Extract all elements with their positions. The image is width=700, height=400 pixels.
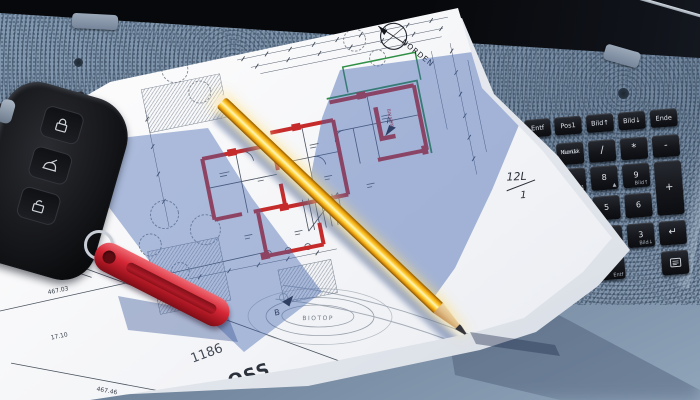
ende-key: Ende	[650, 108, 678, 128]
grille-screw-right	[618, 88, 629, 99]
pos1-key: Pos1	[554, 116, 582, 136]
numpad-9-key: 9Bild↑	[622, 162, 651, 188]
bild-up-key: Bild↑	[586, 113, 614, 133]
unlock-icon	[28, 196, 50, 216]
menu-icon-key	[661, 250, 690, 276]
numpad-plus-key: +	[654, 160, 685, 216]
numpad-enter-key: ↵	[658, 220, 687, 246]
photo-scene: Esc F1 Entf Pos1 Bild↑ Bild↓ Ende NumLkS…	[0, 0, 700, 400]
divide-key: /	[588, 139, 617, 163]
bild-down-key: Bild↓	[618, 111, 646, 131]
carabiner-hole	[100, 248, 117, 265]
numpad-8-key: 8▲	[590, 165, 619, 191]
numpad-6-key: 6	[624, 192, 653, 218]
trunk-open-icon	[39, 155, 61, 175]
lock-icon	[51, 115, 73, 135]
multiply-key: *	[620, 136, 649, 160]
menu-icon	[669, 257, 682, 268]
numpad-3-key: 3Bild↓	[626, 222, 655, 248]
minus-key: -	[652, 134, 681, 158]
